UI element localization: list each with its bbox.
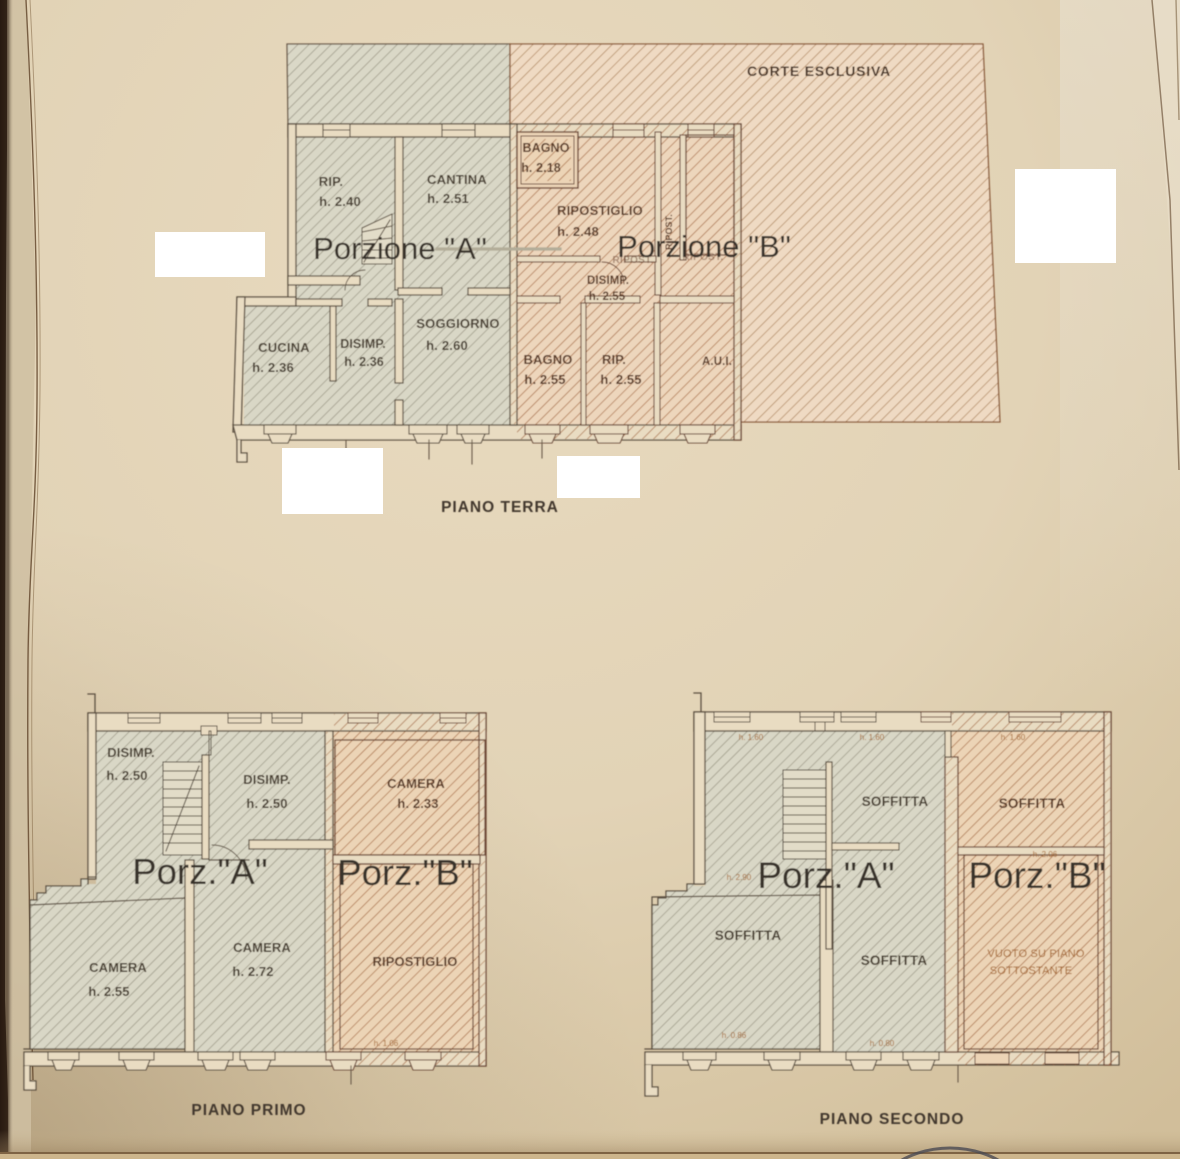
- svg-text:h. 2.90: h. 2.90: [727, 873, 752, 882]
- svg-text:h. 0.86: h. 0.86: [722, 1031, 747, 1040]
- svg-text:h. 1.60: h. 1.60: [1001, 733, 1026, 742]
- svg-text:RIPOST.: RIPOST.: [664, 214, 674, 250]
- svg-text:PIANO SECONDO: PIANO SECONDO: [820, 1111, 965, 1128]
- svg-text:h. 2.33: h. 2.33: [397, 796, 438, 811]
- svg-text:Porz."B": Porz."B": [337, 852, 472, 893]
- svg-text:Porzione "A": Porzione "A": [313, 231, 487, 266]
- svg-text:h. 1.60: h. 1.60: [739, 733, 764, 742]
- svg-text:h. 2.36: h. 2.36: [252, 360, 294, 375]
- svg-text:CANTINA: CANTINA: [427, 172, 487, 187]
- svg-text:SOTTOSTANTE: SOTTOSTANTE: [990, 965, 1072, 977]
- svg-text:Porz."A": Porz."A": [132, 851, 267, 892]
- svg-text:CAMERA: CAMERA: [387, 776, 445, 791]
- svg-text:h. 2.55: h. 2.55: [88, 984, 129, 999]
- svg-text:h. 2.72: h. 2.72: [232, 964, 273, 979]
- svg-text:CORTE ESCLUSIVA: CORTE ESCLUSIVA: [747, 63, 891, 79]
- svg-text:h. 2.55: h. 2.55: [600, 372, 641, 387]
- svg-text:RIP.: RIP.: [602, 352, 626, 367]
- svg-text:CUCINA: CUCINA: [258, 340, 310, 355]
- svg-text:BAGNO: BAGNO: [524, 352, 573, 367]
- svg-text:SOFFITTA: SOFFITTA: [861, 953, 928, 968]
- svg-text:DISIMP.: DISIMP.: [587, 275, 629, 287]
- svg-text:SOGGIORNO: SOGGIORNO: [416, 316, 499, 331]
- svg-text:PIANO PRIMO: PIANO PRIMO: [191, 1102, 306, 1119]
- svg-text:A.U.I.: A.U.I.: [702, 356, 732, 368]
- svg-text:h. 2.50: h. 2.50: [246, 796, 287, 811]
- svg-text:h. 0.80: h. 0.80: [870, 1039, 895, 1048]
- svg-text:h. 2.55: h. 2.55: [589, 291, 626, 303]
- svg-text:SOFFITTA: SOFFITTA: [862, 794, 929, 809]
- svg-text:DISIMP.: DISIMP.: [243, 772, 290, 787]
- svg-text:BAGNO: BAGNO: [522, 141, 569, 155]
- svg-text:RIPOSTIGLIO: RIPOSTIGLIO: [373, 954, 458, 969]
- svg-text:h. 1.06: h. 1.06: [374, 1039, 399, 1048]
- svg-text:CAMERA: CAMERA: [89, 960, 147, 975]
- svg-text:h. 2.40: h. 2.40: [319, 194, 361, 209]
- svg-text:Porz."A": Porz."A": [757, 855, 894, 896]
- svg-text:CAMERA: CAMERA: [233, 940, 291, 955]
- svg-text:SOFFITTA: SOFFITTA: [999, 796, 1066, 811]
- svg-text:h. 2.55: h. 2.55: [524, 372, 565, 387]
- svg-text:h. 2.48: h. 2.48: [557, 224, 599, 239]
- svg-text:h. 2.18: h. 2.18: [521, 161, 561, 175]
- svg-text:Porz."B": Porz."B": [968, 855, 1105, 896]
- svg-text:DISIMP.: DISIMP.: [107, 745, 154, 760]
- svg-text:h. 2.36: h. 2.36: [344, 355, 384, 369]
- svg-text:h. 1.60: h. 1.60: [860, 733, 885, 742]
- svg-text:DISIMP.: DISIMP.: [340, 337, 386, 351]
- svg-text:PIANO TERRA: PIANO TERRA: [441, 499, 559, 516]
- svg-text:RIPOSTIGLIO: RIPOSTIGLIO: [557, 203, 643, 218]
- svg-text:h. 2.50: h. 2.50: [106, 768, 147, 783]
- svg-text:h. 2.51: h. 2.51: [427, 191, 469, 206]
- svg-text:Porzione "B": Porzione "B": [617, 229, 791, 264]
- svg-text:RIP.: RIP.: [319, 174, 343, 189]
- svg-text:VUOTO SU PIANO: VUOTO SU PIANO: [987, 948, 1085, 960]
- svg-text:h. 2.60: h. 2.60: [426, 338, 468, 353]
- svg-text:SOFFITTA: SOFFITTA: [715, 928, 782, 943]
